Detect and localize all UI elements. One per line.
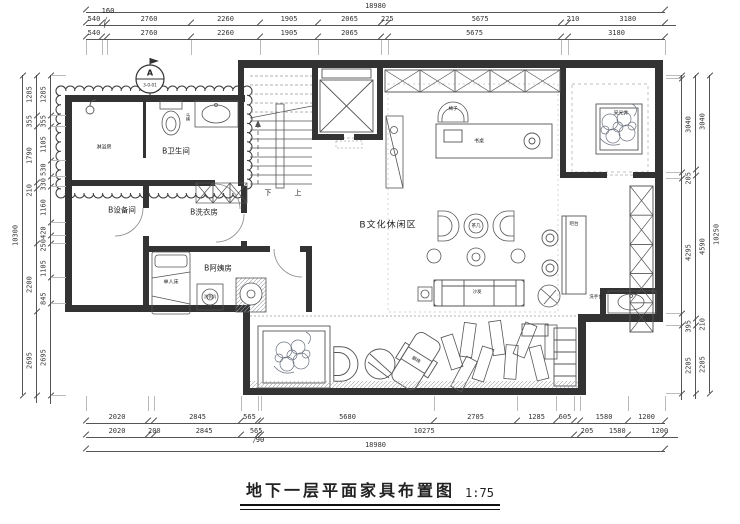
dim-extension [51, 303, 66, 304]
dim-extension [261, 396, 262, 411]
bar-counter [542, 216, 586, 294]
dimension-value: 5675 [394, 13, 567, 25]
round-table [365, 349, 395, 379]
dim-extension [258, 396, 259, 411]
dim-bottom-row2: 202020028455651027520515801200 [86, 425, 678, 438]
tea-table [427, 214, 525, 266]
dimension-value: 210 [696, 318, 709, 331]
dim-extension [580, 396, 581, 411]
dimension-value: 1580 [580, 411, 628, 423]
dim-extension [561, 40, 562, 55]
dim-extension [241, 396, 242, 411]
dimension-value: 2200 [23, 251, 36, 319]
furniture-label-chair: 椅子 [449, 106, 458, 112]
dimension-value: 2065 [318, 27, 381, 39]
desk [436, 124, 552, 158]
dim-extension [51, 186, 66, 187]
side-table [418, 285, 560, 307]
drawing-scale: 1:75 [465, 486, 494, 501]
room-label-washstand: 洗手台 [589, 294, 603, 300]
dim-extension [51, 243, 66, 244]
armchair [334, 347, 358, 382]
dimension-value: 18980 [86, 439, 665, 451]
dim-extension [517, 396, 518, 411]
dimension-value: 2260 [191, 27, 260, 39]
furniture-label-desk: 书桌 [474, 138, 484, 145]
dimension-value: 2695 [37, 312, 50, 404]
window-band [250, 381, 578, 388]
dim-extension [381, 40, 382, 55]
dimension-value: 2260 [191, 13, 260, 25]
dim-extension [260, 40, 261, 55]
room-label-laundry: B洗衣房 [190, 207, 218, 218]
dim-extension [51, 160, 66, 161]
dim-extension [51, 176, 66, 177]
dimension-value: 3040 [682, 78, 695, 172]
dim-extension [148, 396, 149, 411]
dim-bottom-row1: 2020284556556802705128560515801200 [86, 411, 665, 424]
dim-extension [107, 40, 108, 55]
section-marker-code: 3-0-01 [143, 83, 157, 88]
dimension-value: 1905 [260, 27, 318, 39]
dim-extension [51, 115, 66, 116]
room-label-lightwell: 采光井 [613, 110, 628, 117]
dimension-value: 1105 [37, 128, 50, 162]
room-label-bar: 吧台 [570, 221, 579, 227]
dimension-value: 210 [567, 13, 580, 25]
dim-left-mid: 1285355179021022002695 [23, 75, 37, 403]
dim-extension [666, 78, 681, 79]
dim-extension [388, 40, 389, 55]
floor-plan-sheet: 18980 540276022601905206522556752103180 … [0, 0, 740, 524]
dim-extension [666, 393, 681, 394]
dim-extension [568, 40, 569, 55]
armchair [438, 211, 459, 241]
dim-extension [86, 40, 87, 55]
dimension-value: 1580 [593, 425, 641, 437]
dimension-value: 4295 [682, 185, 695, 320]
dimension-value: 5675 [388, 27, 561, 39]
dimension-value: 4590 [696, 175, 709, 318]
stair-up-label: 上 [295, 188, 302, 198]
room-label-leisure: B文化休闲区 [359, 218, 416, 231]
dim-extension [102, 40, 103, 55]
dim-extension [666, 313, 681, 314]
mop-pool [236, 278, 266, 312]
dim-extension [51, 126, 66, 127]
room-label-nanny: B阿姨房 [204, 263, 232, 274]
section-marker-label: A [147, 69, 153, 78]
dim-extension [665, 40, 666, 55]
dimension-value: 1200 [628, 411, 665, 423]
dimension-value: 10275 [268, 425, 581, 437]
dimension-value: 845 [37, 286, 50, 312]
dim-leader-160: 160 [102, 7, 115, 15]
dimension-value: 10300 [9, 75, 22, 395]
leader-lines [104, 17, 258, 443]
dim-extension [51, 75, 66, 76]
dimension-value: 1200 [641, 425, 678, 437]
dimension-value: 5680 [261, 411, 434, 423]
room-label-equipment: B设备间 [108, 205, 136, 216]
dim-leader-90: 90 [256, 436, 264, 444]
dimension-value: 18980 [86, 0, 665, 12]
room-label-bathroom: B卫生间 [162, 146, 190, 157]
dim-extension [574, 396, 575, 411]
dim-right-overall: 10250 [709, 75, 723, 393]
dim-right-mid: 304045902102205 [695, 75, 709, 399]
dim-extension [51, 395, 66, 396]
dimension-value: 2020 [86, 425, 148, 437]
dim-extension [191, 40, 192, 55]
decor-cabinet [386, 116, 403, 188]
stair-down-label: 下 [265, 188, 272, 198]
dim-extension [51, 235, 66, 236]
furniture-label-toilet: 马桶 [185, 113, 191, 121]
armchair [493, 211, 514, 241]
dimension-value: 2760 [107, 13, 191, 25]
dimension-value: 1905 [260, 13, 318, 25]
dim-top-row2: 540276022601905206556753180 [86, 27, 665, 40]
dimension-value: 3180 [568, 27, 665, 39]
dimension-value: 1285 [517, 411, 556, 423]
dimension-value: 2205 [696, 331, 709, 399]
dimension-value [23, 196, 36, 251]
dimension-value: 2695 [23, 319, 36, 403]
dimension-value: 10250 [710, 75, 723, 393]
dim-extension [51, 277, 66, 278]
dimension-value: 2705 [434, 411, 517, 423]
dim-extension [665, 396, 666, 411]
dimension-value: 2845 [161, 425, 248, 437]
elevator-shaft [320, 69, 373, 132]
dimension-value: 2760 [107, 27, 191, 39]
dim-extension [666, 172, 681, 173]
dimension-value: 1160 [37, 190, 50, 226]
dim-top-row1: 540276022601905206522556752103180 [86, 13, 676, 26]
dim-left-overall: 10300 [9, 75, 23, 395]
dim-left-inner: 12853551105530330116042025011058452695 [37, 75, 51, 404]
dim-extension [154, 396, 155, 411]
furniture-label-bed: 单人床 [163, 279, 178, 286]
title-block: 地下一层平面家具布置图 1:75 [0, 477, 740, 506]
drawing-title: 地下一层平面家具布置图 [246, 477, 455, 501]
dim-right-inner: 304020542953952205 [681, 75, 695, 400]
dimension-value: 3040 [696, 75, 709, 169]
dim-extension [86, 396, 87, 411]
dim-extension [51, 222, 66, 223]
washbasin-icon [608, 291, 656, 313]
dim-bottom-overall: 18980 [86, 439, 665, 452]
dimension-value: 1790 [23, 128, 36, 184]
dim-extension [318, 40, 319, 55]
furniture-label-sofa: 沙发 [473, 289, 482, 295]
furniture-label-washer: 洗衣机 [204, 294, 216, 300]
furniture-label-tea: 茶几 [472, 223, 481, 229]
dim-top-overall: 18980 [86, 0, 665, 13]
dim-extension [666, 325, 681, 326]
room-label-shower: 淋浴房 [96, 144, 111, 151]
dim-extension [434, 396, 435, 411]
dim-extension [556, 396, 557, 411]
dim-extension [628, 396, 629, 411]
staircase [250, 76, 312, 188]
dimension-value: 2845 [154, 411, 241, 423]
dim-extension [666, 178, 681, 179]
desk-chair [438, 102, 468, 122]
dimension-value: 2020 [86, 411, 148, 423]
dimension-value: 1285 [37, 75, 50, 115]
dim-extension [666, 75, 681, 76]
dimension-value: 1285 [23, 75, 36, 115]
dimension-value: 2065 [318, 13, 381, 25]
